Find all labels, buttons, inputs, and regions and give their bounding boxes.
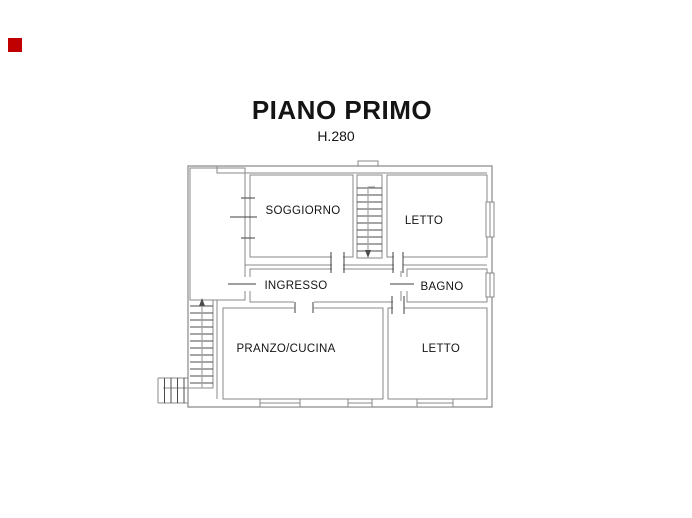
room-labels: SOGGIORNO LETTO INGRESSO BAGNO PRANZO/CU… [236, 205, 463, 355]
staircase-internal [357, 187, 382, 258]
floorplan-drawing: PIANO PRIMO H.280 [0, 0, 692, 518]
floorplan-page: PIANO PRIMO H.280 [0, 0, 692, 518]
label-pranzo-cucina: PRANZO/CUCINA [236, 343, 335, 355]
stair-down-arrow-icon [365, 250, 371, 258]
ceiling-height-label: H.280 [317, 128, 355, 144]
corridor-room [190, 168, 245, 300]
red-square-marker [8, 38, 22, 52]
staircase-external [158, 378, 188, 403]
stair-top-landing [358, 161, 378, 166]
label-ingresso: INGRESSO [264, 280, 327, 292]
window-pranzo-1 [260, 399, 300, 407]
label-bagno: BAGNO [420, 281, 463, 293]
window-bagno [486, 273, 494, 297]
stair-up-arrow-icon [199, 298, 205, 306]
label-soggiorno: SOGGIORNO [266, 205, 341, 217]
window-letto1 [486, 202, 494, 237]
window-letto2 [417, 399, 453, 407]
label-letto-1: LETTO [405, 215, 443, 227]
label-letto-2: LETTO [422, 343, 460, 355]
window-pranzo-2 [348, 399, 372, 407]
page-title: PIANO PRIMO [252, 95, 432, 125]
